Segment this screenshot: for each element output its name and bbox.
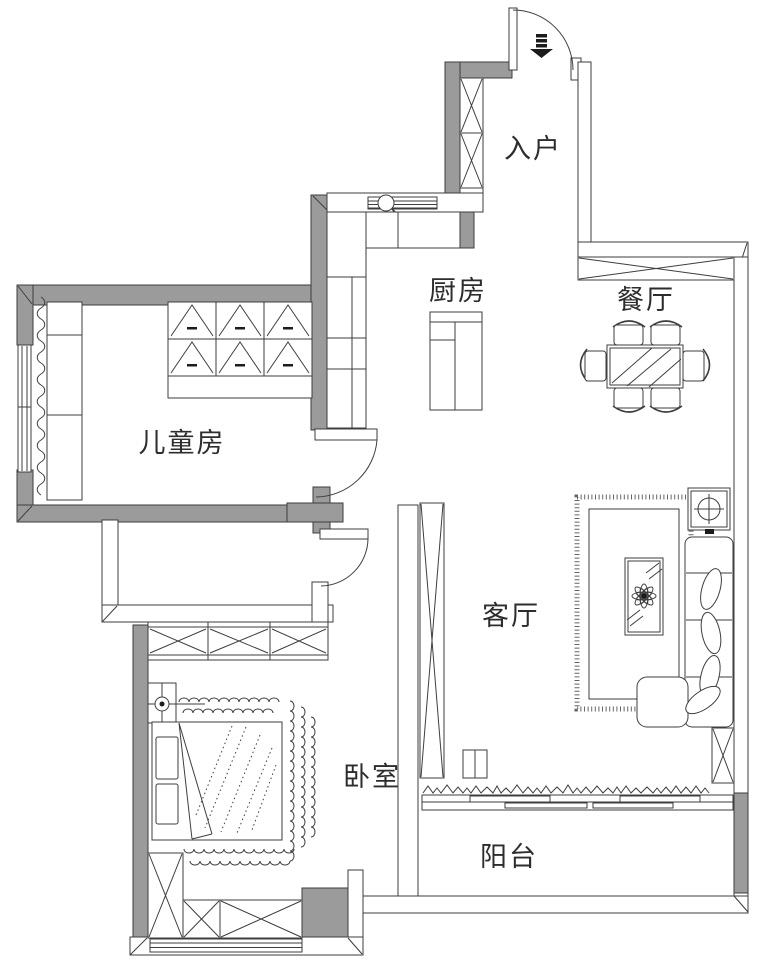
wall-balcony-south	[363, 896, 748, 913]
bedroom-bed	[152, 722, 282, 840]
cabinet-end-stool	[463, 750, 487, 778]
dining-table	[607, 345, 683, 388]
bed-pillow	[156, 784, 178, 824]
label-dining: 餐厅	[617, 285, 675, 315]
wall-duct-block	[302, 888, 348, 938]
children-desk	[47, 302, 82, 500]
kitchen-counter-west	[327, 212, 366, 428]
wall-kitchen-west	[311, 195, 327, 430]
dining-area: 餐厅	[581, 285, 710, 412]
balcony-sliding-door	[422, 795, 733, 810]
bedroom-nightstand	[148, 683, 205, 723]
sliding-panel	[620, 796, 700, 802]
dining-chair	[683, 349, 710, 381]
sofa-side-cabinet	[712, 728, 734, 783]
entry-door-leaf	[509, 8, 517, 70]
wall-living-divider	[398, 505, 418, 896]
dining-window	[578, 257, 734, 280]
entry-area: 入户	[460, 8, 573, 195]
wall-bedroom-west	[133, 625, 148, 938]
wall-children-west-upper	[17, 285, 33, 345]
label-living-room: 客厅	[482, 601, 540, 631]
tv-cabinet	[420, 503, 444, 778]
bedroom-door	[320, 529, 368, 586]
kitchen-island-cabinet	[430, 312, 482, 410]
wall-cross-pier-h	[287, 503, 343, 522]
wall-bedroom-north	[102, 605, 333, 622]
balcony-curtain	[423, 785, 709, 793]
entry-shoe-cabinet	[460, 78, 483, 195]
sofa-chaise	[637, 677, 688, 727]
label-balcony: 阳台	[480, 842, 538, 872]
bedroom-south-window	[150, 939, 302, 952]
bed-pillow	[156, 737, 178, 779]
bedroom-door-leaf	[320, 529, 368, 539]
dining-chair	[581, 349, 607, 381]
dining-chair	[613, 388, 645, 412]
living-room-area: 客厅	[420, 488, 734, 783]
sliding-panel	[505, 803, 587, 808]
bedroom-cabinet-vertical	[148, 853, 183, 938]
wall-children-south	[17, 505, 315, 522]
sliding-panel	[593, 803, 673, 808]
dining-chair	[650, 388, 682, 412]
wall-bedroom-door-stub	[312, 582, 328, 622]
coffee-table	[625, 558, 663, 635]
wall-hall-west	[102, 520, 118, 608]
wall-entry-east	[578, 62, 591, 242]
balcony-area: 阳台	[422, 785, 733, 872]
wall-entry-west	[445, 62, 460, 197]
dining-chair	[650, 321, 682, 345]
sliding-panel	[470, 796, 550, 802]
kitchen-counter-cabinet	[365, 212, 460, 248]
sofa-side-table	[688, 488, 730, 534]
label-children-room: 儿童房	[139, 428, 226, 458]
children-curtain	[37, 297, 45, 495]
label-bedroom: 卧室	[343, 762, 401, 792]
bedroom-wardrobe	[148, 622, 328, 660]
bedroom-door-swing	[321, 539, 368, 586]
children-wardrobe	[168, 302, 312, 398]
label-kitchen: 厨房	[429, 276, 487, 306]
wall-dining-north	[578, 242, 748, 257]
children-door-leaf	[315, 429, 377, 440]
dining-chair	[613, 321, 645, 345]
floor-plan: 入户 厨房	[0, 0, 773, 973]
bedroom-cabinet-horizontal	[183, 900, 302, 938]
label-entry: 入户	[504, 134, 562, 164]
children-window	[18, 345, 31, 472]
entry-direction-arrow-icon	[530, 34, 553, 58]
